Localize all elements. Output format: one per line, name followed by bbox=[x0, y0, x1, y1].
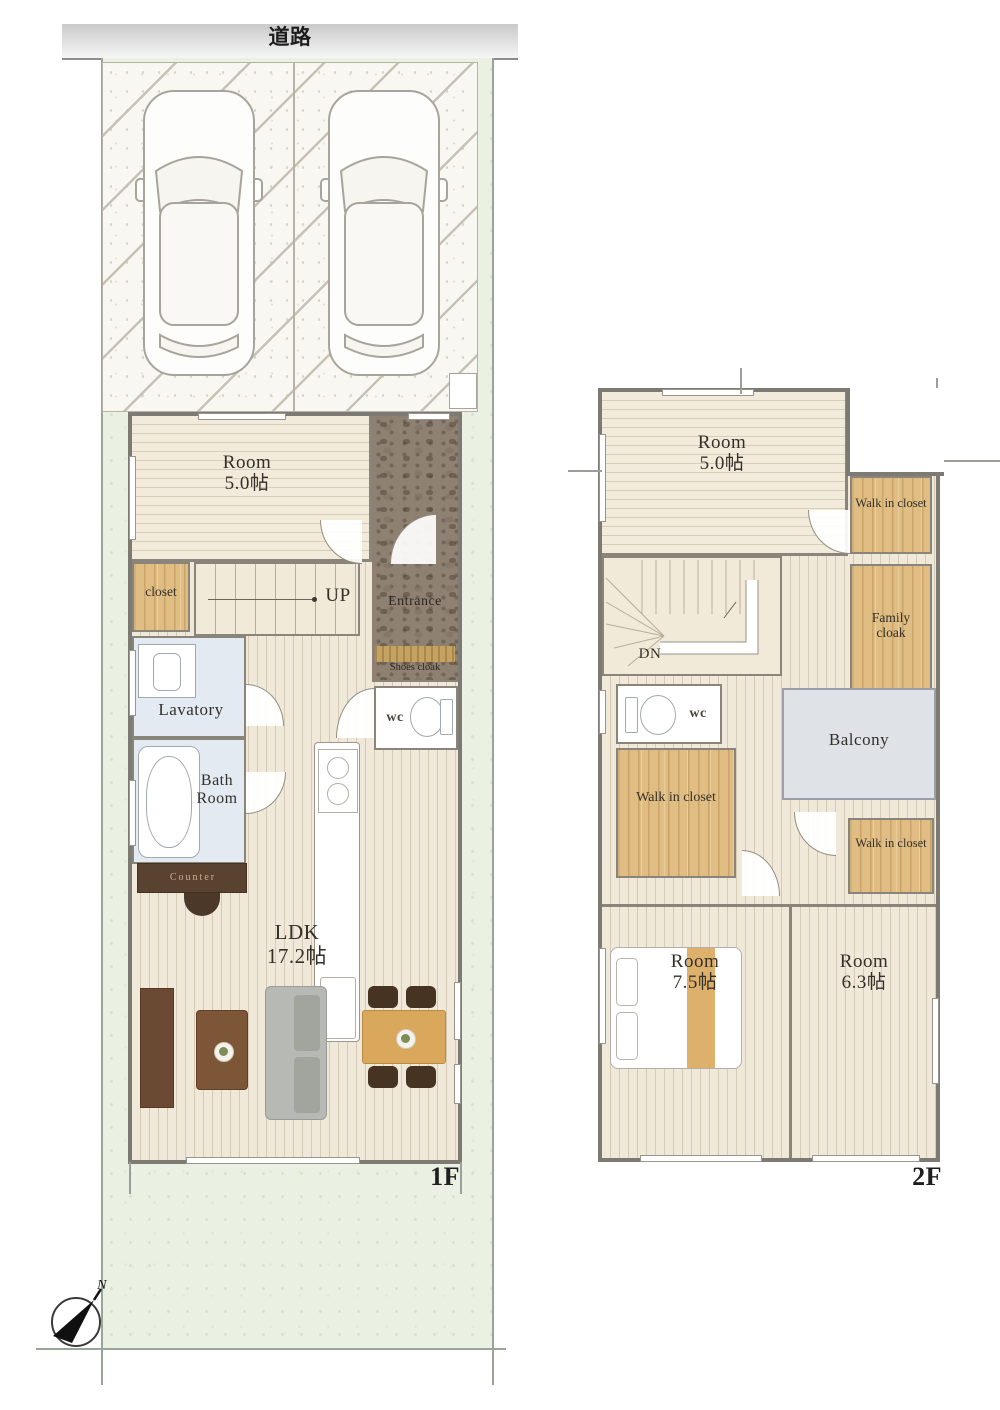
dining-chair bbox=[406, 986, 436, 1008]
bath-line1: Bath bbox=[201, 772, 233, 789]
window bbox=[932, 998, 939, 1084]
room-size: 5.0帖 bbox=[700, 453, 745, 474]
balcony-label: Balcony bbox=[782, 730, 936, 749]
family-cloak-label: Family cloak bbox=[856, 610, 926, 640]
floor-plan-page: 道路 bbox=[0, 0, 1000, 1410]
floor1-plan: Room 5.0帖 Entrance Shoes cloak closet UP… bbox=[128, 412, 462, 1164]
washbasin bbox=[138, 644, 196, 698]
room-size: 6.3帖 bbox=[842, 972, 887, 993]
shoes-cloak-label: Shoes cloak bbox=[372, 662, 458, 674]
stairs-up-label: UP bbox=[314, 585, 362, 606]
wc-1f: wc bbox=[374, 686, 458, 750]
pillow bbox=[616, 1012, 638, 1060]
tick-mark bbox=[460, 1162, 462, 1194]
parking-divider bbox=[293, 63, 295, 411]
bath-room: Bath Room bbox=[132, 738, 246, 864]
room-6.3-label: Room 6.3帖 bbox=[792, 951, 936, 994]
entrance-area: Entrance Shoes cloak bbox=[372, 416, 458, 682]
bath-line2: Room bbox=[196, 790, 237, 807]
counter-desk-label: Counter bbox=[138, 872, 248, 883]
walk-in-closet-left-label: Walk in closet bbox=[634, 790, 718, 806]
wc-2f: wc bbox=[616, 684, 722, 744]
washbasin-bowl bbox=[153, 653, 181, 691]
lavatory: Lavatory bbox=[132, 636, 246, 738]
burner bbox=[327, 783, 349, 805]
wc-door-arc bbox=[336, 688, 374, 738]
walk-in-closet-top-label: Walk in closet bbox=[854, 496, 928, 510]
stairs-up: UP bbox=[194, 562, 360, 636]
plant-icon bbox=[396, 1029, 416, 1049]
lavatory-door-arc bbox=[246, 684, 284, 726]
room-6.3: Room 6.3帖 bbox=[792, 904, 936, 1158]
room-name: Room bbox=[671, 951, 719, 972]
wc-1f-label: wc bbox=[378, 710, 412, 726]
car-icon bbox=[319, 83, 449, 383]
sofa bbox=[265, 986, 327, 1120]
toilet-tank bbox=[625, 697, 638, 733]
utility-box bbox=[449, 373, 477, 409]
wc-2f-label: wc bbox=[680, 706, 716, 722]
site-boundary-right bbox=[492, 58, 494, 1385]
room-5.0-1f-label: Room 5.0帖 bbox=[147, 452, 347, 495]
burner bbox=[327, 757, 349, 779]
dining-chair bbox=[406, 1066, 436, 1088]
window bbox=[129, 456, 136, 540]
walk-in-closet-top bbox=[850, 476, 932, 554]
room-name: Room bbox=[840, 951, 888, 972]
room-5.0-2f-label: Room 5.0帖 bbox=[622, 432, 822, 475]
tick-mark bbox=[740, 368, 742, 394]
plant-icon bbox=[214, 1042, 234, 1062]
closet-1f-label: closet bbox=[132, 584, 190, 599]
stool bbox=[184, 893, 220, 916]
sofa-cushion bbox=[294, 1057, 320, 1113]
room-size: 7.5帖 bbox=[673, 972, 718, 993]
window bbox=[408, 413, 450, 420]
toilet-tank bbox=[440, 699, 453, 735]
bath-room-label: Bath Room bbox=[186, 772, 248, 808]
stove bbox=[318, 749, 358, 813]
toilet-bowl bbox=[410, 697, 444, 737]
ldk-name: LDK bbox=[275, 920, 320, 944]
entrance-label: Entrance bbox=[372, 594, 458, 610]
lavatory-label: Lavatory bbox=[134, 700, 248, 719]
room-7.5-label: Room 7.5帖 bbox=[602, 951, 788, 994]
room75-door-arc bbox=[742, 850, 780, 896]
window bbox=[129, 780, 136, 846]
dining-table bbox=[362, 1010, 446, 1064]
window bbox=[599, 690, 606, 734]
window bbox=[186, 1157, 360, 1164]
counter-desk: Counter bbox=[137, 863, 247, 893]
stairs-arrow bbox=[208, 599, 314, 600]
window bbox=[198, 413, 286, 420]
dining-chair bbox=[368, 1066, 398, 1088]
window bbox=[454, 982, 461, 1040]
coffee-table bbox=[196, 1010, 248, 1090]
sofa-cushion bbox=[294, 995, 320, 1051]
tick-mark bbox=[129, 1162, 131, 1194]
compass-north-label: N bbox=[92, 1278, 112, 1294]
window bbox=[640, 1155, 762, 1162]
plan-corner-cut bbox=[846, 388, 944, 476]
room-name: Room bbox=[223, 452, 271, 473]
tv-board bbox=[140, 988, 174, 1108]
walk-in-closet-right-label: Walk in closet bbox=[854, 836, 928, 850]
bath-door-arc bbox=[246, 772, 286, 814]
floor2-plan: Room 5.0帖 Walk in closet Family cloak bbox=[598, 388, 940, 1162]
walk-in-closet-right bbox=[848, 818, 934, 894]
window bbox=[129, 650, 136, 716]
toilet-bowl bbox=[640, 695, 676, 735]
window bbox=[454, 1064, 461, 1104]
stairs-down-label: DN bbox=[626, 646, 674, 663]
shoes-cloak-shelf bbox=[375, 646, 455, 662]
road-label: 道路 bbox=[62, 26, 518, 50]
car-icon bbox=[134, 83, 264, 383]
room63-door-arc bbox=[794, 812, 836, 856]
room-7.5: Room 7.5帖 bbox=[602, 904, 792, 1158]
ldk-size: 17.2帖 bbox=[267, 944, 327, 968]
window bbox=[812, 1155, 920, 1162]
front-door-arc bbox=[390, 514, 436, 564]
stairs-down: DN bbox=[602, 556, 782, 676]
tick-mark bbox=[568, 470, 602, 472]
window bbox=[599, 434, 606, 522]
floor1-label: 1F bbox=[404, 1162, 460, 1191]
walk-in-closet-left bbox=[616, 748, 736, 878]
dining-chair bbox=[368, 986, 398, 1008]
room-name: Room bbox=[698, 432, 746, 453]
ldk-label: LDK 17.2帖 bbox=[197, 921, 397, 968]
parking-area bbox=[102, 62, 478, 412]
room-size: 5.0帖 bbox=[225, 473, 270, 494]
floor2-label: 2F bbox=[886, 1162, 942, 1191]
